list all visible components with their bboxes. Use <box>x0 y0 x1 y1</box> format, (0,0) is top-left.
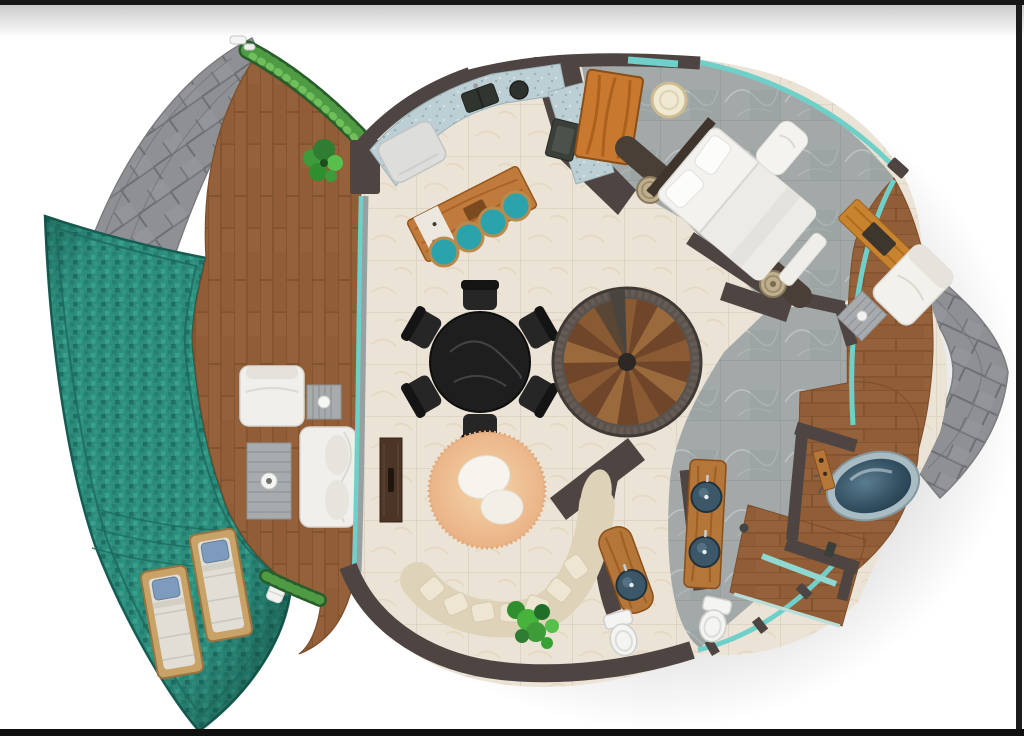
pouf <box>481 490 523 524</box>
floor-plan-page <box>0 0 1024 736</box>
frame-right <box>1016 5 1022 729</box>
cooktop <box>510 81 528 99</box>
top-shadow-gradient <box>0 4 1024 38</box>
double-vanity <box>684 459 727 589</box>
villa-floor-plan <box>0 0 1024 736</box>
entry-glass-door <box>628 60 678 64</box>
deck-armchair <box>240 366 304 426</box>
deck-sofa <box>300 427 356 527</box>
spiral-staircase <box>553 288 701 436</box>
shower-head <box>740 524 749 533</box>
tv-console <box>380 438 402 522</box>
entry-pouf <box>652 83 686 117</box>
frame-bottom <box>0 729 1024 736</box>
frame-top <box>0 0 1024 5</box>
dining-table <box>430 312 530 412</box>
deck-side-table <box>307 385 341 419</box>
deck-coffee-table <box>247 443 291 519</box>
lounge-rug <box>429 432 545 548</box>
